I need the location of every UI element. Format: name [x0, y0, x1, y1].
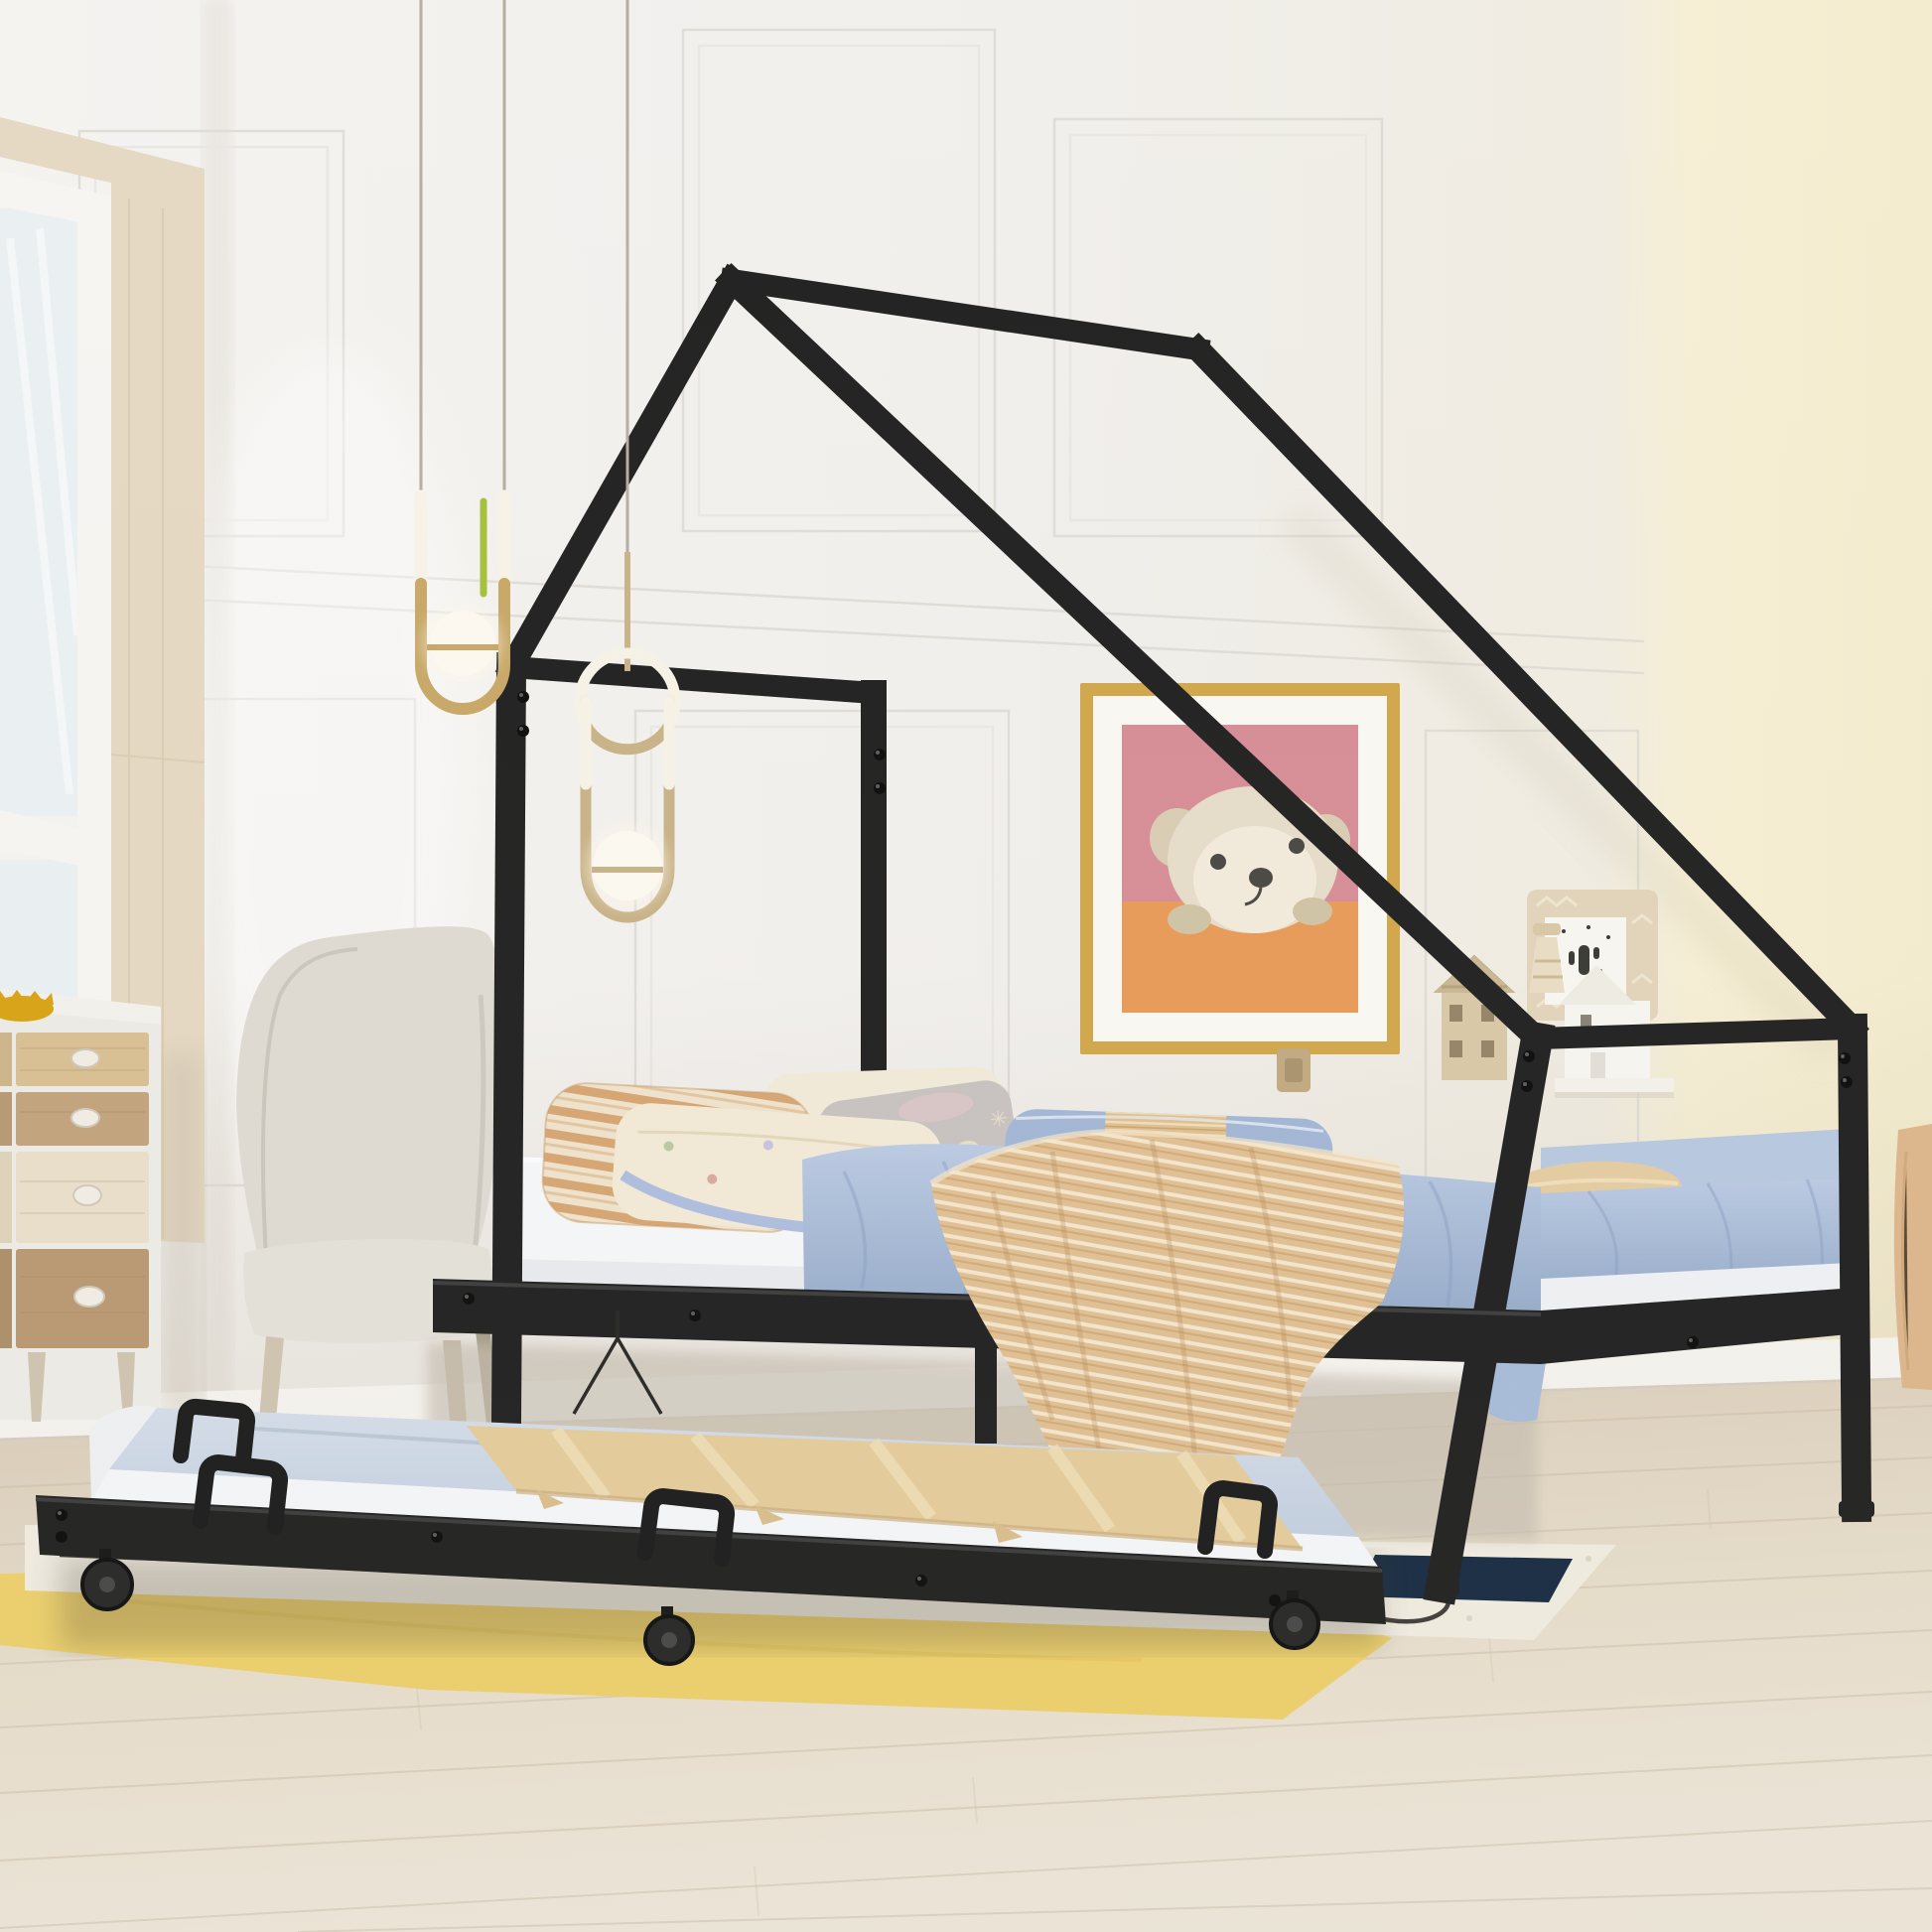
vignette — [0, 0, 1932, 1932]
product-photo-scene: 9me ✳ — [0, 0, 1932, 1932]
scene-canvas: 9me ✳ — [0, 0, 1932, 1932]
